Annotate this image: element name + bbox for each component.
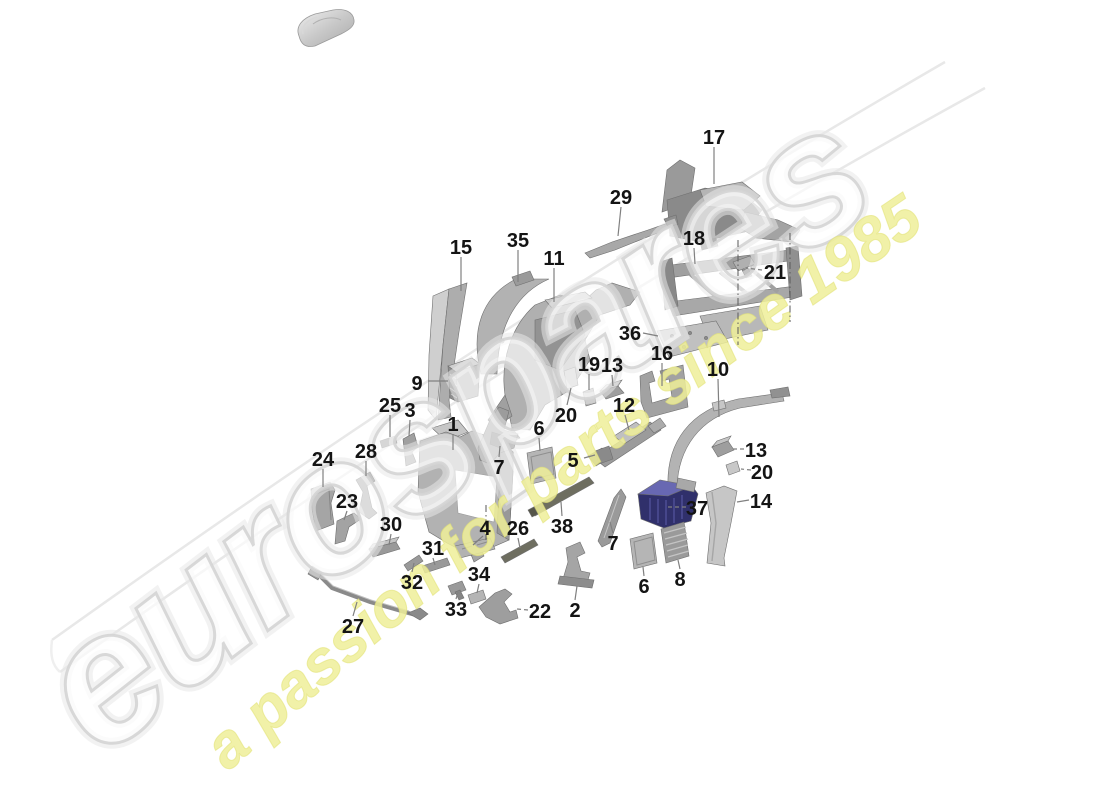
part-number-label-28[interactable]: 28 xyxy=(355,441,377,463)
part-number-label-14[interactable]: 14 xyxy=(750,491,773,513)
part-22-z-bracket[interactable] xyxy=(479,589,518,624)
part-number-label-1[interactable]: 1 xyxy=(447,414,458,436)
part-6-damping-pad-b[interactable] xyxy=(630,533,657,569)
part-number-label-31[interactable]: 31 xyxy=(422,538,444,560)
part-number-label-10[interactable]: 10 xyxy=(707,359,729,381)
part-number-label-13[interactable]: 13 xyxy=(601,355,623,377)
part-14-curved-panel[interactable] xyxy=(706,486,737,566)
part-number-label-12[interactable]: 12 xyxy=(613,395,635,417)
part-number-label-16[interactable]: 16 xyxy=(651,343,673,365)
part-number-label-17[interactable]: 17 xyxy=(703,127,725,149)
leader-line-14 xyxy=(737,500,749,502)
part-number-label-34[interactable]: 34 xyxy=(468,564,491,586)
part-8-ribbed-absorber[interactable] xyxy=(661,522,689,563)
exploded-parts-diagram: eurospares eurospares a passion for part… xyxy=(0,0,1100,800)
part-number-label-22[interactable]: 22 xyxy=(529,601,551,623)
part-number-label-13[interactable]: 13 xyxy=(745,440,767,462)
part-number-label-5[interactable]: 5 xyxy=(567,450,578,472)
part-number-label-7[interactable]: 7 xyxy=(607,533,618,555)
part-number-label-32[interactable]: 32 xyxy=(401,572,423,594)
part-number-label-23[interactable]: 23 xyxy=(336,491,358,513)
part-number-label-4[interactable]: 4 xyxy=(479,518,491,540)
part-number-label-21[interactable]: 21 xyxy=(764,262,786,284)
part-number-label-9[interactable]: 9 xyxy=(411,373,422,395)
part-number-label-35[interactable]: 35 xyxy=(507,230,529,252)
part-2-pillar-bracket[interactable] xyxy=(558,542,594,588)
part-number-label-25[interactable]: 25 xyxy=(379,395,401,417)
part-number-label-15[interactable]: 15 xyxy=(450,237,472,259)
part-number-label-38[interactable]: 38 xyxy=(551,516,573,538)
part-number-label-18[interactable]: 18 xyxy=(683,228,705,250)
leader-line-22 xyxy=(517,609,528,610)
part-number-label-33[interactable]: 33 xyxy=(445,599,467,621)
part-number-label-8[interactable]: 8 xyxy=(674,569,685,591)
leader-line-2 xyxy=(575,586,577,600)
leader-line-8 xyxy=(678,560,680,569)
part-number-label-36[interactable]: 36 xyxy=(619,323,641,345)
part-number-label-6[interactable]: 6 xyxy=(638,576,649,598)
part-number-label-11[interactable]: 11 xyxy=(543,248,564,270)
part-number-label-26[interactable]: 26 xyxy=(507,518,529,540)
part-number-label-29[interactable]: 29 xyxy=(610,187,632,209)
part-number-label-2[interactable]: 2 xyxy=(569,600,580,622)
part-13-spacer-block-b[interactable] xyxy=(712,436,734,457)
part-number-label-24[interactable]: 24 xyxy=(312,449,335,471)
car-top-view-icon xyxy=(298,9,354,46)
part-20-small-pad-b[interactable] xyxy=(726,461,740,475)
part-number-label-3[interactable]: 3 xyxy=(404,400,415,422)
part-number-label-20[interactable]: 20 xyxy=(751,462,773,484)
leader-line-6 xyxy=(643,567,644,576)
part-number-label-19[interactable]: 19 xyxy=(578,354,600,376)
part-number-label-6[interactable]: 6 xyxy=(533,418,544,440)
part-number-label-30[interactable]: 30 xyxy=(380,514,402,536)
part-number-label-7[interactable]: 7 xyxy=(493,457,504,479)
parts-diagram-canvas: eurospares eurospares a passion for part… xyxy=(0,0,1100,800)
leader-line-20 xyxy=(741,469,751,470)
part-number-label-37[interactable]: 37 xyxy=(686,498,708,520)
part-number-label-27[interactable]: 27 xyxy=(342,616,364,638)
part-number-label-20[interactable]: 20 xyxy=(555,405,577,427)
